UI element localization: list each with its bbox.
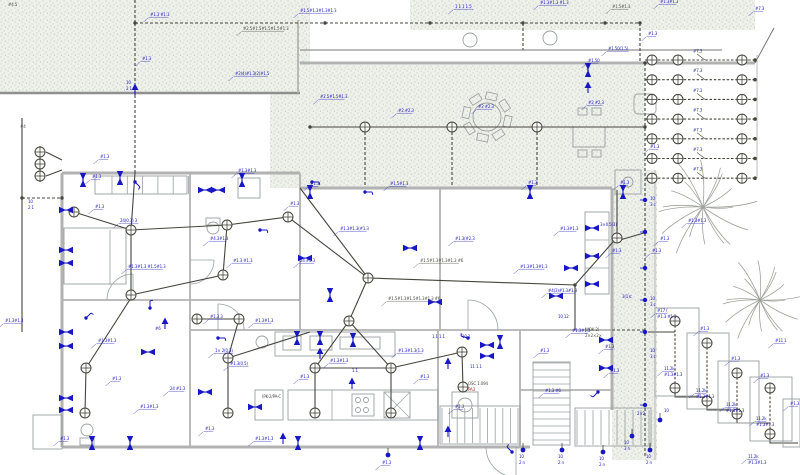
svg-text:#1.3 #1.3: #1.3 #1.3 — [657, 314, 677, 319]
svg-text:#1.3: #1.3 — [731, 356, 741, 361]
ceiling-light-symbol — [673, 55, 683, 65]
svg-text:#1.3(#2.3: #1.3(#2.3 — [455, 236, 475, 241]
svg-text:#7.3: #7.3 — [693, 68, 703, 73]
svg-text:24 #4.3: 24 #4.3 — [300, 258, 316, 263]
circuit-label: #4 — [20, 124, 26, 129]
svg-text:2×2×2×: 2×2×2× — [585, 333, 602, 338]
ceiling-light-symbol — [223, 408, 233, 418]
svg-text:#1.3: #1.3 — [700, 326, 710, 331]
svg-text:#1.3: #1.3 — [142, 56, 152, 61]
svg-text:#1.3#1.3: #1.3#1.3 — [5, 318, 24, 323]
svg-text:1.1: 1.1 — [352, 368, 359, 373]
svg-text:#1.3 #6: #1.3 #6 — [545, 388, 561, 393]
ceiling-light-symbol — [673, 114, 683, 124]
svg-text:24(0.3) 3: 24(0.3) 3 — [120, 218, 138, 223]
ceiling-light-symbol — [457, 347, 467, 357]
circuit-label: 10 — [624, 440, 629, 445]
svg-text:1× 2(0.3): 1× 2(0.3) — [215, 348, 233, 353]
circuit-label: 10.1 — [462, 334, 471, 339]
svg-text:#1.3#1.3: #1.3#1.3 — [726, 408, 745, 413]
ceiling-light-symbol — [310, 363, 320, 373]
ceiling-light-symbol — [647, 94, 657, 104]
svg-text:10: 10 — [599, 456, 604, 461]
svg-text:#1.3: #1.3 — [605, 344, 615, 349]
svg-text:#7.3: #7.3 — [693, 49, 703, 54]
ceiling-light-symbol — [458, 382, 468, 392]
svg-text:#2.5#1.5#1.3: #2.5#1.5#1.3 — [320, 94, 348, 99]
svg-text:#7.3: #7.3 — [693, 147, 703, 152]
ceiling-light-symbol — [673, 173, 683, 183]
electrical-floor-plan: #7.3#7.3#7.3#7.3#7.3#7.3#7.3#4.5#1.3 #1.… — [0, 0, 800, 475]
circuit-label: 2 1 — [28, 205, 35, 210]
svg-text:10: 10 — [624, 440, 629, 445]
circuit-label: 10 — [650, 196, 655, 201]
svg-text:10 12: 10 12 — [558, 314, 569, 319]
svg-text:(PK-2/PA-C: (PK-2/PA-C — [262, 394, 281, 399]
svg-text:#1.3#1.3: #1.3#1.3 — [255, 436, 274, 441]
ceiling-light-symbol — [360, 122, 370, 132]
circuit-label: 2 n — [599, 462, 606, 467]
svg-text:2 1: 2 1 — [28, 205, 35, 210]
ceiling-light-symbol — [447, 122, 457, 132]
circuit-label: 1.1 1.1 — [432, 334, 446, 339]
ceiling-light-symbol — [737, 55, 747, 65]
circuit-label: 11 1.1 — [470, 364, 482, 369]
svg-text:#1.3#1.3: #1.3#1.3 — [664, 372, 683, 377]
svg-text:#1.50: #1.50 — [588, 58, 600, 63]
circuit-label: 10 — [28, 199, 33, 204]
svg-text:#7.3: #7.3 — [693, 88, 703, 93]
svg-text:#1.3#1.3 #1.5#1.3: #1.3#1.3 #1.5#1.3 — [128, 264, 166, 269]
svg-text:#2.5#1.5#1.5#1.5#1.3: #2.5#1.5#1.5#1.5#1.3 — [243, 26, 289, 31]
svg-text:#1.3#1.3(1.3: #1.3#1.3(1.3 — [398, 348, 424, 353]
svg-text:#1.3 #1.3: #1.3 #1.3 — [233, 258, 253, 263]
circuit-label: 2×2 — [637, 411, 646, 416]
circuit-label: 10 12 — [558, 314, 569, 319]
svg-text:24 #1.3: 24 #1.3 — [170, 386, 186, 391]
svg-text:2 n: 2 n — [558, 460, 565, 465]
svg-text:#1.3: #1.3 — [650, 144, 660, 149]
ceiling-light-symbol — [737, 173, 747, 183]
ceiling-light-symbol — [532, 122, 542, 132]
circuit-label: 2×2×2× — [585, 333, 602, 338]
svg-text:#2(4)#1.3(2)#1.5: #2(4)#1.3(2)#1.5 — [235, 71, 270, 76]
svg-text:#1.3#1.3: #1.3#1.3 — [98, 338, 117, 343]
circuit-label: 10 — [664, 408, 669, 413]
circuit-label: 3 c — [650, 202, 656, 207]
circuit-label: 10 — [599, 456, 604, 461]
svg-text:#1.3: #1.3 — [92, 174, 102, 179]
ceiling-light-symbol — [702, 338, 712, 348]
svg-text:#1.3: #1.3 — [100, 154, 110, 159]
circuit-label: 10 — [646, 454, 651, 459]
svg-text:#1.5#1.3#1.3#1.3 #6: #1.5#1.3#1.3#1.3 #6 — [420, 258, 464, 263]
svg-text:#1.3: #1.3 — [112, 376, 122, 381]
svg-text:#1.5#1.3: #1.5#1.3 — [390, 181, 409, 186]
svg-text:10: 10 — [558, 454, 563, 459]
svg-text:10: 10 — [646, 454, 651, 459]
svg-text:#1.3: #1.3 — [420, 374, 430, 379]
circuit-label: #4.5 — [8, 2, 18, 7]
svg-text:10.1: 10.1 — [462, 334, 471, 339]
ceiling-light-symbol — [737, 154, 747, 164]
ceiling-light-symbol — [673, 94, 683, 104]
ceiling-light-symbol — [81, 363, 91, 373]
svg-text:#4.5: #4.5 — [8, 2, 18, 7]
circuit-label: #1.3#1.3 — [748, 460, 767, 465]
svg-text:#1.3#1.3: #1.3#1.3 — [140, 404, 159, 409]
ceiling-light-symbol — [673, 154, 683, 164]
svg-text:#1.3: #1.3 — [612, 248, 622, 253]
circuit-label: OSC 1.094 — [468, 381, 488, 386]
svg-text:#1.3: #1.3 — [760, 373, 770, 378]
svg-text:#17 (: #17 ( — [657, 308, 668, 313]
circuit-label: 3 c — [650, 354, 656, 359]
ceiling-light-symbol — [737, 114, 747, 124]
ceiling-light-symbol — [673, 134, 683, 144]
svg-text:10: 10 — [664, 408, 669, 413]
svg-text:10: 10 — [126, 80, 131, 85]
ceiling-light-symbol — [283, 212, 293, 222]
svg-text:#1.3#1.3: #1.3#1.3 — [330, 358, 349, 363]
ceiling-light-symbol — [737, 134, 747, 144]
circuit-label: #1.3 #1.3 — [657, 314, 677, 319]
ceiling-light-symbol — [192, 314, 202, 324]
circuit-label: 3 n — [624, 446, 631, 451]
svg-text:11.2k: 11.2k — [696, 388, 707, 393]
svg-text:#7.3: #7.3 — [693, 108, 703, 113]
circuit-label: 10 — [558, 454, 563, 459]
ceiling-light-symbol — [647, 114, 657, 124]
circuit-label: #1.3#1.3 — [756, 422, 775, 427]
ceiling-light-symbol — [386, 363, 396, 373]
svg-text:#1.3: #1.3 — [205, 426, 215, 431]
svg-text:#1.3#1.3: #1.3#1.3 — [660, 0, 679, 4]
svg-text:#1.3: #1.3 — [310, 181, 320, 186]
circuit-label: 2 1 — [126, 86, 133, 91]
circuit-label: 3×0.5(3) — [600, 222, 617, 227]
svg-text:10: 10 — [650, 296, 655, 301]
circuit-label: #1.3#1.3 — [696, 394, 715, 399]
svg-text:#1.3#1.3#1.3: #1.3#1.3#1.3 — [520, 264, 548, 269]
svg-text:2 n: 2 n — [646, 460, 653, 465]
ceiling-light-symbol — [35, 147, 45, 157]
circuit-label: 10 — [126, 80, 131, 85]
svg-text:#1.3 3: #1.3 3 — [210, 314, 223, 319]
circuit-label: 1.1 — [352, 368, 359, 373]
svg-text:WOK 2(: WOK 2( — [585, 327, 600, 332]
svg-text:#7.3: #7.3 — [693, 127, 703, 132]
circuit-label: 2 n — [558, 460, 565, 465]
svg-text:#7.3: #7.3 — [693, 167, 703, 172]
svg-text:#1.3: #1.3 — [382, 460, 392, 465]
circuit-label: 2 n — [646, 460, 653, 465]
ceiling-light-symbol — [737, 94, 747, 104]
svg-text:10: 10 — [519, 454, 524, 459]
circuit-label: WOK 2( — [585, 327, 600, 332]
ceiling-light-symbol — [732, 368, 742, 378]
svg-text:#1.3#1.3: #1.3#1.3 — [696, 394, 715, 399]
svg-text:#6: #6 — [155, 326, 161, 331]
ceiling-light-symbol — [765, 383, 775, 393]
ceiling-light-symbol — [234, 314, 244, 324]
circuit-label: PA3 — [468, 387, 476, 392]
svg-text:#1.3: #1.3 — [60, 436, 70, 441]
svg-text:PA3: PA3 — [468, 387, 476, 392]
svg-text:#1.3#1.3: #1.3#1.3 — [255, 318, 274, 323]
svg-text:2 1: 2 1 — [126, 86, 133, 91]
svg-text:11.2k: 11.2k — [748, 454, 759, 459]
ceiling-light-symbol — [647, 134, 657, 144]
svg-text:#4: #4 — [20, 124, 26, 129]
svg-text:#1.3: #1.3 — [620, 180, 630, 185]
svg-text:#1.3#1.3 #1.3: #1.3#1.3 #1.3 — [540, 0, 569, 5]
ceiling-light-symbol — [126, 225, 136, 235]
svg-text:#4(3)#1.3#1.3: #4(3)#1.3#1.3 — [548, 288, 578, 293]
svg-text:#1.5#1.3#1.5#1.3#1.3 #6: #1.5#1.3#1.5#1.3#1.3 #6 — [388, 296, 441, 301]
svg-text:#11 1: #11 1 — [775, 338, 787, 343]
ceiling-light-symbol — [80, 408, 90, 418]
svg-text:#1.3 #1.3: #1.3 #1.3 — [150, 12, 170, 17]
svg-text:#1.3(0.5): #1.3(0.5) — [230, 361, 248, 366]
ceiling-light-symbol — [673, 75, 683, 85]
svg-text:#1.3: #1.3 — [660, 236, 670, 241]
svg-text:#1.3: #1.3 — [528, 180, 538, 185]
svg-text:#1.3: #1.3 — [652, 248, 662, 253]
svg-text:#1.3: #1.3 — [790, 401, 800, 406]
svg-text:#1.5#1.3#1.3#1.3: #1.5#1.3#1.3#1.3 — [300, 8, 337, 13]
svg-text:#1.3#1.3: #1.3#1.3 — [560, 226, 579, 231]
svg-text:#1.3: #1.3 — [648, 31, 658, 36]
svg-text:1.1 1.1: 1.1 1.1 — [432, 334, 446, 339]
svg-text:3 c: 3 c — [650, 302, 656, 307]
circuit-label: 10 — [519, 454, 524, 459]
ceiling-light-symbol — [363, 273, 373, 283]
ceiling-light-symbol — [35, 171, 45, 181]
circuit-label: 2 n — [519, 460, 526, 465]
circuit-label: #1.3#1.3 — [726, 408, 745, 413]
svg-text:#1.3: #1.3 — [610, 368, 620, 373]
svg-text:2 n: 2 n — [599, 462, 606, 467]
svg-text:#2 #2.3: #2 #2.3 — [588, 100, 604, 105]
svg-text:#1.3: #1.3 — [540, 348, 550, 353]
svg-text:#1.3: #1.3 — [455, 404, 465, 409]
ceiling-light-symbol — [386, 408, 396, 418]
svg-text:3 c: 3 c — [650, 354, 656, 359]
ceiling-light-symbol — [647, 75, 657, 85]
ceiling-light-symbol — [218, 270, 228, 280]
ceiling-light-symbol — [344, 316, 354, 326]
svg-text:#1.3#1.3: #1.3#1.3 — [238, 168, 257, 173]
svg-text:3(1)c: 3(1)c — [622, 294, 632, 299]
svg-text:10: 10 — [28, 199, 33, 204]
svg-text:#1.3: #1.3 — [95, 204, 105, 209]
ceiling-light-symbol — [765, 429, 775, 439]
svg-text:3×0.5(3): 3×0.5(3) — [600, 222, 617, 227]
svg-text:OSC 1.094: OSC 1.094 — [468, 381, 488, 386]
circuit-label: 3(1)c — [622, 294, 632, 299]
ceiling-light-symbol — [35, 159, 45, 169]
circuit-label: 10 — [650, 296, 655, 301]
svg-text:10: 10 — [650, 348, 655, 353]
ceiling-light-symbol — [310, 408, 320, 418]
circuit-label: 10 — [650, 348, 655, 353]
plan-svg: #7.3#7.3#7.3#7.3#7.3#7.3#7.3#4.5#1.3 #1.… — [0, 0, 800, 475]
svg-text:#2 #2.3: #2 #2.3 — [478, 104, 494, 109]
svg-text:10: 10 — [650, 196, 655, 201]
ceiling-light-symbol — [647, 173, 657, 183]
svg-text:3 c: 3 c — [650, 202, 656, 207]
svg-text:#1.3#1.3(#1.3: #1.3#1.3(#1.3 — [340, 226, 369, 231]
circuit-label: #1.3#1.3 — [664, 372, 683, 377]
svg-text:11.2k: 11.2k — [726, 402, 737, 407]
ceiling-light-symbol — [222, 220, 232, 230]
circuit-label: 3 c — [650, 302, 656, 307]
svg-text:#1.3#1.3: #1.3#1.3 — [688, 218, 707, 223]
svg-text:#1.3#1.3: #1.3#1.3 — [748, 460, 767, 465]
ceiling-light-symbol — [612, 233, 622, 243]
svg-text:#1.3: #1.3 — [300, 374, 310, 379]
ceiling-light-symbol — [647, 154, 657, 164]
svg-text:#1.3: #1.3 — [290, 201, 300, 206]
svg-text:#7.3: #7.3 — [755, 6, 765, 11]
svg-text:#4.3#1.3: #4.3#1.3 — [210, 236, 229, 241]
ceiling-light-symbol — [670, 383, 680, 393]
ceiling-light-symbol — [126, 290, 136, 300]
circuit-label: #6 — [155, 326, 161, 331]
svg-text:1 1 1 1.5: 1 1 1 1.5 — [455, 4, 472, 9]
svg-text:2 n: 2 n — [519, 460, 526, 465]
svg-text:11.2k: 11.2k — [756, 416, 767, 421]
svg-text:11.2k: 11.2k — [664, 366, 675, 371]
circuit-label: (PK-2/PA-C — [262, 394, 281, 399]
ceiling-light-symbol — [647, 55, 657, 65]
svg-text:11 1.1: 11 1.1 — [470, 364, 482, 369]
svg-text:#1.3#1.3: #1.3#1.3 — [756, 422, 775, 427]
svg-text:#2 #2.3: #2 #2.3 — [398, 108, 414, 113]
ceiling-light-symbol — [737, 75, 747, 85]
svg-text:#1.50(1.5): #1.50(1.5) — [608, 46, 629, 51]
svg-text:3 n: 3 n — [624, 446, 631, 451]
svg-text:#1.5#1.3: #1.5#1.3 — [612, 4, 631, 9]
svg-text:2×2: 2×2 — [637, 411, 646, 416]
